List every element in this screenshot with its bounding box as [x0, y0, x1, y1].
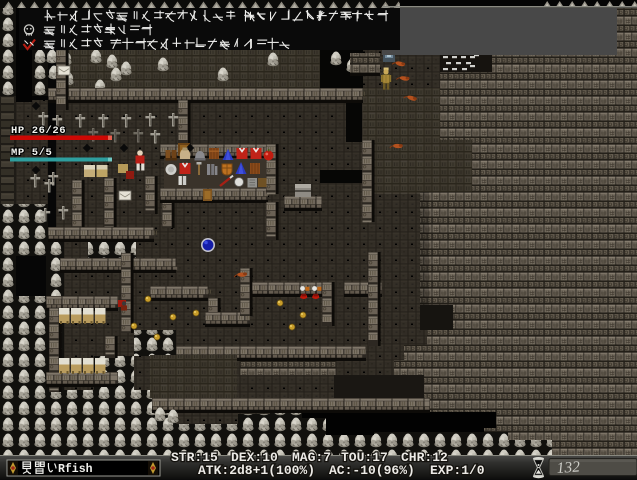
svg-text:EXP:1/0: EXP:1/0: [430, 463, 485, 478]
svg-text:HP 26/26: HP 26/26: [11, 125, 66, 137]
svg-text:Rfish: Rfish: [58, 463, 93, 476]
svg-text:132: 132: [556, 458, 581, 477]
svg-text:MP 5/5: MP 5/5: [11, 147, 52, 159]
svg-text:AC:-10(96%): AC:-10(96%): [329, 463, 415, 478]
svg-text:ATK:2d8+1(100%): ATK:2d8+1(100%): [198, 463, 315, 478]
